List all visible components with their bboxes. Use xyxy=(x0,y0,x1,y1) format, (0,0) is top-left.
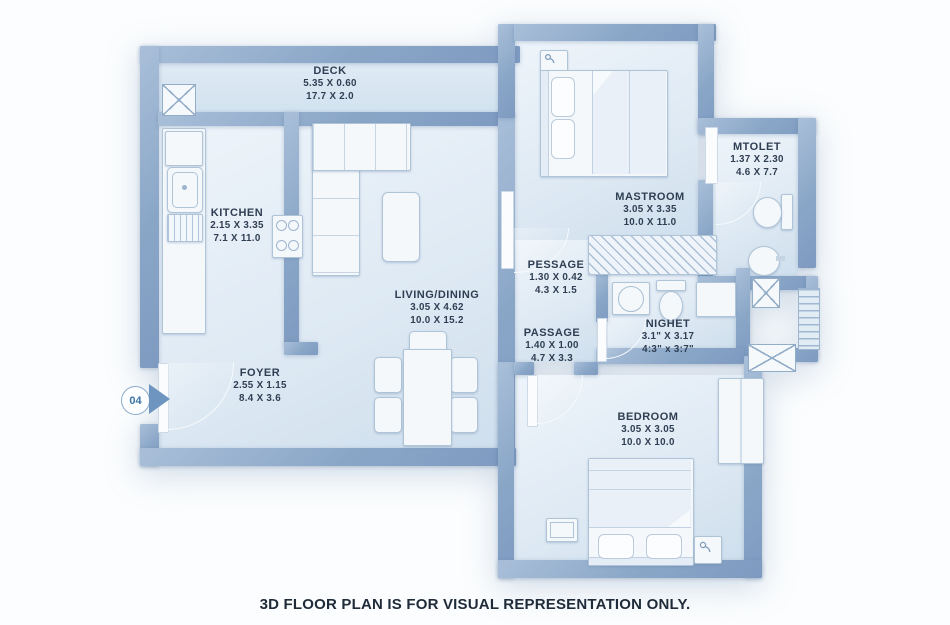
room-name: NIGHET xyxy=(620,317,716,331)
shaft-x-icon-kitchen xyxy=(162,84,196,116)
wall-living-bottom xyxy=(140,448,516,466)
blanket-seam xyxy=(589,489,691,490)
shaft-x-icon-large xyxy=(748,344,796,372)
room-dim-imperial: 10.0 X 15.2 xyxy=(382,315,492,328)
passage-label: PASSAGE 1.40 X 1.00 4.7 X 3.3 xyxy=(506,326,598,366)
bed-headboard xyxy=(541,71,549,176)
wc-tank xyxy=(781,194,793,230)
room-dim-metric: 5.35 X 0.60 xyxy=(275,78,385,91)
dining-chair xyxy=(450,357,478,393)
room-dim-metric: 1.37 X 2.30 xyxy=(709,154,805,167)
blanket-seam xyxy=(629,71,630,174)
burner-icon xyxy=(288,240,299,251)
room-dim-imperial: 4.6 X 7.7 xyxy=(709,167,805,180)
room-name: LIVING/DINING xyxy=(382,288,492,302)
room-dim-metric: 3.1" X 3.17 xyxy=(620,331,716,344)
room-dim-imperial: 4:3" x 3:7" xyxy=(620,344,716,357)
bed-blanket-mastroom xyxy=(592,71,666,174)
room-dim-metric: 3.05 X 3.05 xyxy=(592,424,704,437)
mastroom-label: MASTROOM 3.05 X 3.35 10.0 X 11.0 xyxy=(594,190,706,230)
room-dim-metric: 3.05 X 4.62 xyxy=(382,302,492,315)
pillow xyxy=(551,119,575,159)
room-name: FOYER xyxy=(214,366,306,380)
foyer-label: FOYER 2.55 X 1.15 8.4 X 3.6 xyxy=(214,366,306,406)
pillow xyxy=(598,534,634,559)
service-duct xyxy=(798,288,820,350)
pessage-label: PESSAGE 1.30 X 0.42 4.3 X 1.5 xyxy=(510,258,602,298)
sink-basin xyxy=(172,172,198,208)
pillow xyxy=(646,534,682,559)
room-name: MASTROOM xyxy=(594,190,706,204)
dining-chair xyxy=(374,397,402,433)
deck-label: DECK 5.35 X 0.60 17.7 X 2.0 xyxy=(275,64,385,104)
room-dim-metric: 2.55 X 1.15 xyxy=(214,380,306,393)
room-dim-metric: 3.05 X 3.35 xyxy=(594,204,706,217)
room-name: MTOLET xyxy=(709,140,805,154)
lamp-icon xyxy=(543,52,559,68)
room-dim-imperial: 17.7 X 2.0 xyxy=(275,91,385,104)
unit-number-badge: 04 xyxy=(121,386,150,415)
room-name: BEDROOM xyxy=(592,410,704,424)
wall-kitchen-divider-foot xyxy=(284,342,318,355)
dining-table xyxy=(403,349,452,446)
disclaimer-caption: 3D FLOOR PLAN IS FOR VISUAL REPRESENTATI… xyxy=(0,596,950,613)
kitchen-label: KITCHEN 2.15 X 3.35 7.1 X 11.0 xyxy=(191,206,283,246)
wall-bedroom-left xyxy=(498,362,514,578)
floor-plan-canvas: DECK 5.35 X 0.60 17.7 X 2.0 KITCHEN 2.15… xyxy=(0,0,950,625)
wall-mastroom-top xyxy=(514,24,716,41)
wc-icon-mtolet xyxy=(753,197,782,228)
wc-tank-nighet xyxy=(656,280,686,291)
room-dim-imperial: 8.4 X 3.6 xyxy=(214,393,306,406)
lamp-icon xyxy=(697,539,715,557)
washbasin-icon-mtolet xyxy=(748,246,780,276)
room-dim-metric: 1.30 X 0.42 xyxy=(510,272,602,285)
room-dim-metric: 2.15 X 3.35 xyxy=(191,220,283,233)
shaft-x-icon-small xyxy=(752,278,780,308)
blanket-fold xyxy=(668,510,690,527)
room-dim-imperial: 4.3 X 1.5 xyxy=(510,285,602,298)
room-name: PASSAGE xyxy=(506,326,598,340)
sofa-top-arm xyxy=(312,123,411,171)
wardrobe-mastroom xyxy=(588,235,717,275)
mtolet-label: MTOLET 1.37 X 2.30 4.6 X 7.7 xyxy=(709,140,805,180)
room-dim-imperial: 10.0 X 10.0 xyxy=(592,437,704,450)
room-name: DECK xyxy=(275,64,385,78)
wardrobe-bedroom xyxy=(718,378,764,464)
pillow xyxy=(551,77,575,117)
room-name: PESSAGE xyxy=(510,258,602,272)
entry-arrow-icon xyxy=(149,384,170,414)
faucet-icon xyxy=(182,185,187,190)
room-dim-metric: 1.40 X 1.00 xyxy=(506,340,598,353)
kitchen-cabinet xyxy=(165,131,203,166)
burner-icon xyxy=(288,220,299,231)
blanket-fold xyxy=(593,71,613,95)
room-dim-imperial: 4.7 X 3.3 xyxy=(506,353,598,366)
wall-mastroom-left xyxy=(498,24,515,118)
living-dining-label: LIVING/DINING 3.05 X 4.62 10.0 X 15.2 xyxy=(382,288,492,328)
blanket-seam xyxy=(589,470,691,471)
wall-left-upper xyxy=(140,46,159,368)
basin-bowl-icon xyxy=(618,286,644,312)
floor-plan: DECK 5.35 X 0.60 17.7 X 2.0 KITCHEN 2.15… xyxy=(0,0,950,625)
shower-tray-nighet xyxy=(696,282,736,317)
nighet-label: NIGHET 3.1" X 3.17 4:3" x 3:7" xyxy=(620,317,716,357)
washbasin-nighet xyxy=(612,282,650,315)
dining-chair xyxy=(374,357,402,393)
room-dim-imperial: 10.0 X 11.0 xyxy=(594,217,706,230)
stool-top xyxy=(550,522,574,538)
basin-tap-icon xyxy=(776,256,785,261)
coffee-table xyxy=(382,192,420,262)
bedroom-label: BEDROOM 3.05 X 3.05 10.0 X 10.0 xyxy=(592,410,704,450)
stool-bedroom xyxy=(546,518,578,542)
wall-deck-top xyxy=(140,46,520,63)
room-name: KITCHEN xyxy=(191,206,283,220)
dining-chair xyxy=(450,397,478,433)
room-dim-imperial: 7.1 X 11.0 xyxy=(191,233,283,246)
